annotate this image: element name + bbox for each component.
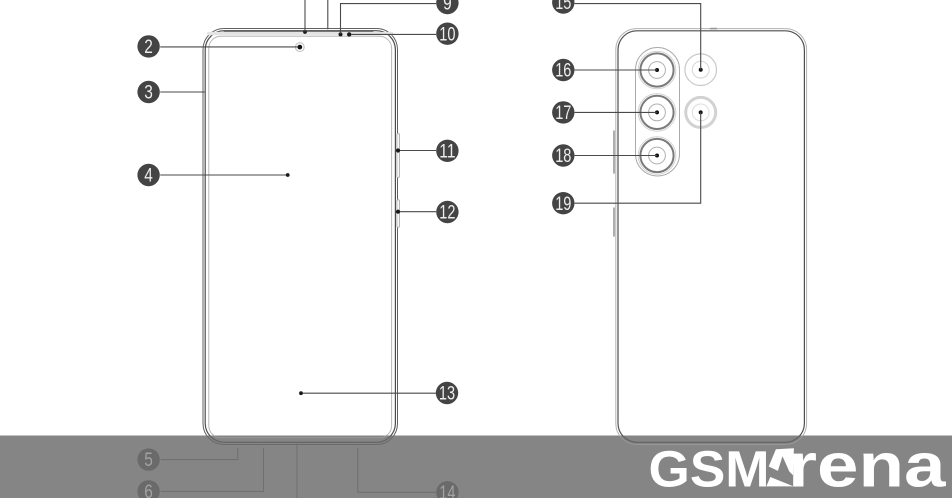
svg-text:12: 12	[439, 203, 455, 224]
svg-text:13: 13	[439, 384, 455, 405]
svg-text:14: 14	[439, 483, 456, 498]
svg-text:4: 4	[144, 166, 153, 187]
svg-text:5: 5	[144, 450, 153, 471]
svg-text:17: 17	[555, 103, 571, 124]
svg-text:16: 16	[555, 61, 571, 82]
svg-text:rena: rena	[788, 432, 946, 498]
svg-text:19: 19	[555, 194, 571, 215]
svg-text:15: 15	[555, 0, 571, 14]
svg-text:3: 3	[144, 83, 153, 104]
svg-text:18: 18	[555, 146, 571, 167]
svg-text:2: 2	[144, 37, 153, 58]
svg-text:10: 10	[439, 24, 455, 45]
svg-text:GSM: GSM	[649, 441, 770, 498]
svg-text:9: 9	[443, 0, 452, 15]
svg-text:11: 11	[439, 141, 455, 162]
svg-text:6: 6	[144, 482, 153, 498]
